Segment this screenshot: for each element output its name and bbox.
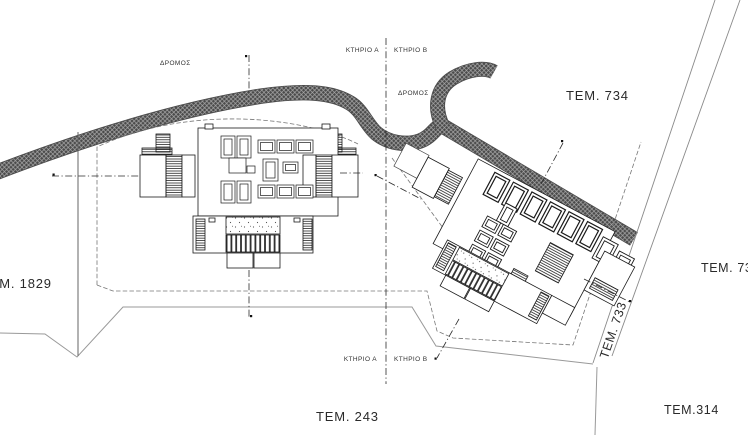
parcel-label-243: ΤΕΜ. 243 bbox=[316, 410, 379, 423]
building-b-label-bottom: ΚΤΗΡΙΟ Β bbox=[394, 357, 428, 364]
road-label-upper: ΔΡΟΜΟΣ bbox=[160, 61, 191, 68]
site-plan-page: ΔΡΟΜΟΣ ΚΤΗΡΙΟ Α ΚΤΗΡΙΟ Β ΔΡΟΜΟΣ ΤΕΜ. 734… bbox=[0, 0, 748, 435]
parcel-label-1829: ΤΕΜ. 1829 bbox=[0, 277, 52, 290]
parcel-label-734: ΤΕΜ. 734 bbox=[566, 89, 629, 102]
outer-boundary-gray bbox=[0, 307, 597, 435]
building-a-label-bottom: ΚΤΗΡΙΟ Α bbox=[335, 357, 377, 364]
building-b-label-top: ΚΤΗΡΙΟ Β bbox=[394, 48, 428, 55]
parcel-label-732: ΤΕΜ. 732 bbox=[701, 262, 748, 275]
building-a-label-top: ΚΤΗΡΙΟ Α bbox=[337, 48, 379, 55]
parcel-label-314: ΤΕΜ.314 bbox=[664, 404, 719, 417]
road-label-lower: ΔΡΟΜΟΣ bbox=[398, 91, 429, 98]
building-a-terrace bbox=[193, 216, 313, 268]
building-a-plan bbox=[140, 124, 358, 268]
site-plan-drawing bbox=[0, 0, 748, 435]
